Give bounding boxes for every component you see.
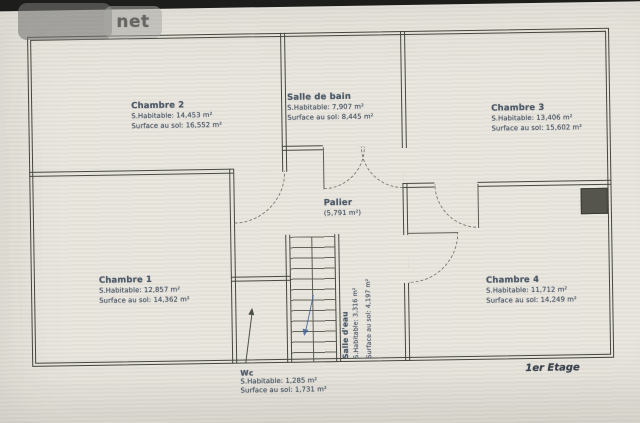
wall-segment	[231, 276, 291, 282]
room-surface-sol: Surface au sol: 15,602 m²	[491, 122, 582, 134]
room-label-chambre-4: Chambre 4 S.Habitable: 11,712 m² Surface…	[486, 274, 577, 306]
room-label-wc: Wc S.Habitable: 1,285 m² Surface au sol:…	[240, 367, 327, 395]
room-name: Palier	[324, 198, 361, 209]
chimney-conduit	[581, 188, 608, 214]
room-surface-sol: Surface au sol: 14,249 m²	[486, 294, 577, 306]
room-label-palier: Palier (5,791 m²)	[324, 198, 362, 219]
room-surface-sol: Surface au sol: 8,445 m²	[287, 112, 373, 124]
wall-segment	[402, 183, 408, 235]
room-surface-sol: Surface au sol: 16,552 m²	[131, 120, 222, 132]
room-area: (5,791 m²)	[324, 208, 361, 219]
floorplan-photo: Chambre 2 S.Habitable: 14,453 m² Surface…	[0, 0, 640, 423]
watermark-right-block: net	[104, 6, 162, 38]
room-surface-sol: Surface au sol: 1,731 m²	[241, 385, 327, 395]
room-label-chambre-1: Chambre 1 S.Habitable: 12,857 m² Surface…	[99, 274, 190, 306]
watermark-left-block	[18, 3, 112, 40]
room-label-chambre-2: Chambre 2 S.Habitable: 14,453 m² Surface…	[131, 100, 222, 132]
room-label-salle-de-bain: Salle de bain S.Habitable: 7,907 m² Surf…	[287, 91, 374, 123]
watermark-text: net	[116, 12, 149, 32]
room-name-salle-deau: Salle d'eau	[339, 241, 350, 359]
plan-paper: Chambre 2 S.Habitable: 14,453 m² Surface…	[0, 1, 640, 423]
room-surface-sol: Surface au sol: 14,362 m²	[99, 295, 190, 307]
wall-segment	[282, 145, 323, 151]
floor-title: 1er Etage	[525, 362, 580, 374]
room-label-chambre-3: Chambre 3 S.Habitable: 13,406 m² Surface…	[491, 102, 582, 134]
